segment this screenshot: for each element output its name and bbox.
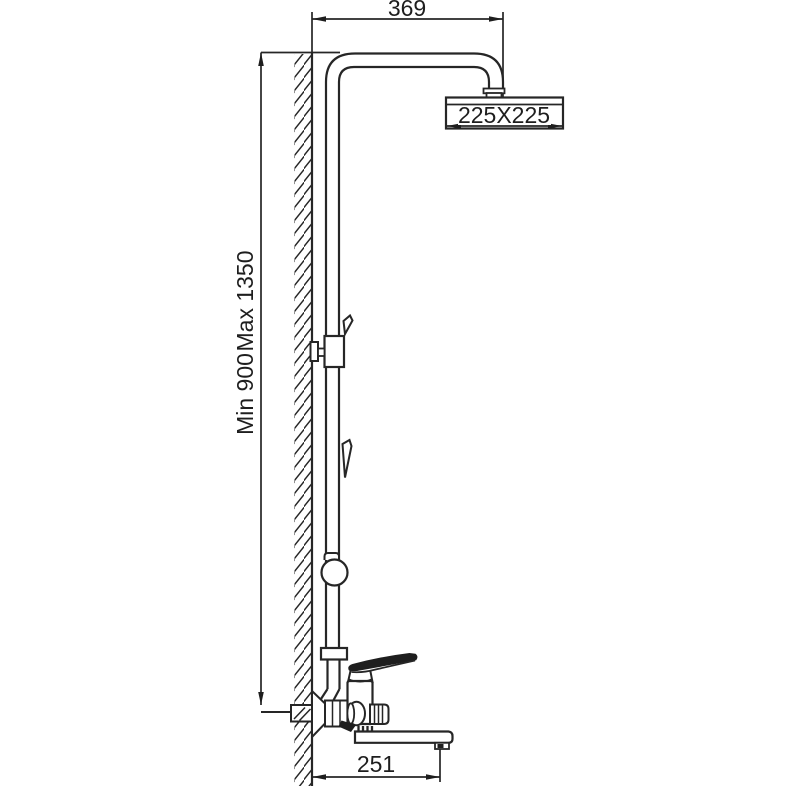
union-collar <box>321 648 347 660</box>
aerator-outlet <box>438 744 444 748</box>
dim-label-spout-length: 251 <box>357 751 395 777</box>
shower-head: 225X225 <box>446 98 563 129</box>
mixer <box>339 653 453 749</box>
bath-spout <box>355 732 453 743</box>
escutcheon-cone <box>312 691 325 737</box>
hose-connector <box>322 553 348 586</box>
handset-hook-lower <box>343 440 352 478</box>
wall-anchor-pin <box>318 349 325 357</box>
arrowhead-right <box>426 774 440 779</box>
arrowhead-left <box>312 16 326 21</box>
arrowhead-right <box>489 16 503 21</box>
dim-label-height-max: Max 1350 <box>232 250 258 351</box>
arm-inner-edge <box>339 67 489 650</box>
wall-anchor-plate <box>311 342 319 361</box>
drawing-root: 369 Max 1350 Min 900 225X225 <box>232 0 563 786</box>
slider-block <box>325 336 345 367</box>
dimension-height: Max 1350 Min 900 <box>232 53 340 706</box>
slider-bracket <box>311 316 353 368</box>
arrowhead-left <box>312 774 326 779</box>
connector-knob <box>322 560 348 586</box>
wall-hatching <box>294 54 312 786</box>
wall <box>294 53 312 786</box>
dimension-spout: 251 <box>312 749 440 782</box>
arrowhead-up <box>258 53 264 67</box>
arm-outer-edge <box>326 54 503 651</box>
dim-label-arm-width: 369 <box>388 0 426 21</box>
dim-label-head-size: 225X225 <box>458 102 550 128</box>
dimension-arm-width: 369 <box>312 0 503 97</box>
arrowhead-down <box>258 692 264 705</box>
riser-pipe-and-arm <box>326 54 505 651</box>
shower-column-technical-drawing: 369 Max 1350 Min 900 225X225 <box>0 0 800 800</box>
diverter-flange-inner <box>347 703 354 723</box>
lower-pipe-junction <box>319 648 347 703</box>
handset-hook-upper <box>344 316 353 335</box>
dim-label-height-min: Min 900 <box>232 353 258 435</box>
